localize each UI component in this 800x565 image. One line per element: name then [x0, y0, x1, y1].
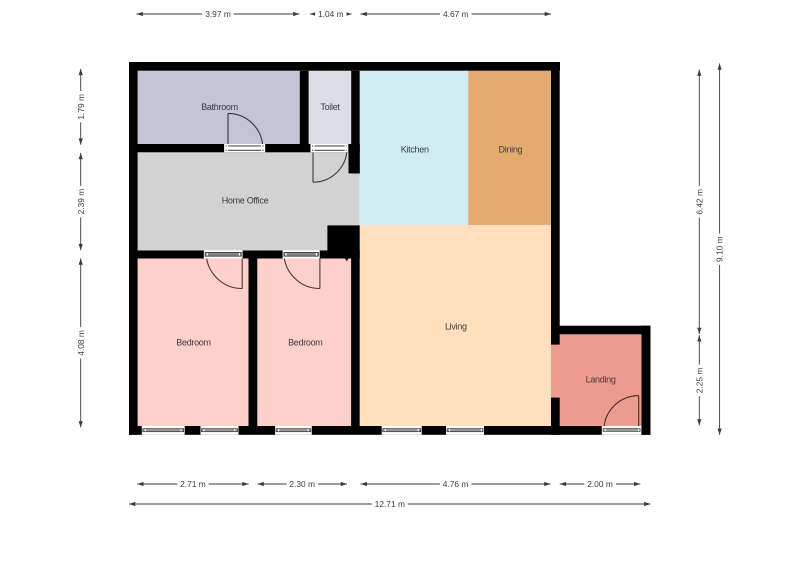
svg-text:2.39 m: 2.39 m — [76, 189, 86, 215]
svg-text:1.79 m: 1.79 m — [76, 94, 86, 120]
svg-text:Living: Living — [445, 322, 467, 332]
svg-text:4.76 m: 4.76 m — [443, 479, 469, 489]
svg-text:9.10 m: 9.10 m — [715, 236, 725, 262]
svg-text:2.00 m: 2.00 m — [587, 479, 613, 489]
svg-text:4.08 m: 4.08 m — [76, 330, 86, 356]
svg-text:3.97 m: 3.97 m — [205, 9, 231, 19]
svg-text:4.67 m: 4.67 m — [443, 9, 469, 19]
svg-text:Home Office: Home Office — [222, 196, 269, 206]
svg-text:2.25 m: 2.25 m — [694, 368, 704, 394]
svg-text:Bedroom: Bedroom — [288, 337, 322, 347]
svg-text:Kitchen: Kitchen — [401, 145, 429, 155]
svg-text:1.04 m: 1.04 m — [318, 9, 344, 19]
svg-text:12.71 m: 12.71 m — [375, 499, 405, 509]
svg-text:Landing: Landing — [586, 374, 616, 384]
svg-text:Bedroom: Bedroom — [176, 337, 210, 347]
svg-text:Bathroom: Bathroom — [201, 102, 238, 112]
svg-text:Dining: Dining — [499, 145, 523, 155]
svg-text:6.42 m: 6.42 m — [694, 189, 704, 215]
svg-text:2.30 m: 2.30 m — [289, 479, 315, 489]
svg-text:2.71 m: 2.71 m — [180, 479, 206, 489]
svg-text:Toilet: Toilet — [320, 102, 340, 112]
